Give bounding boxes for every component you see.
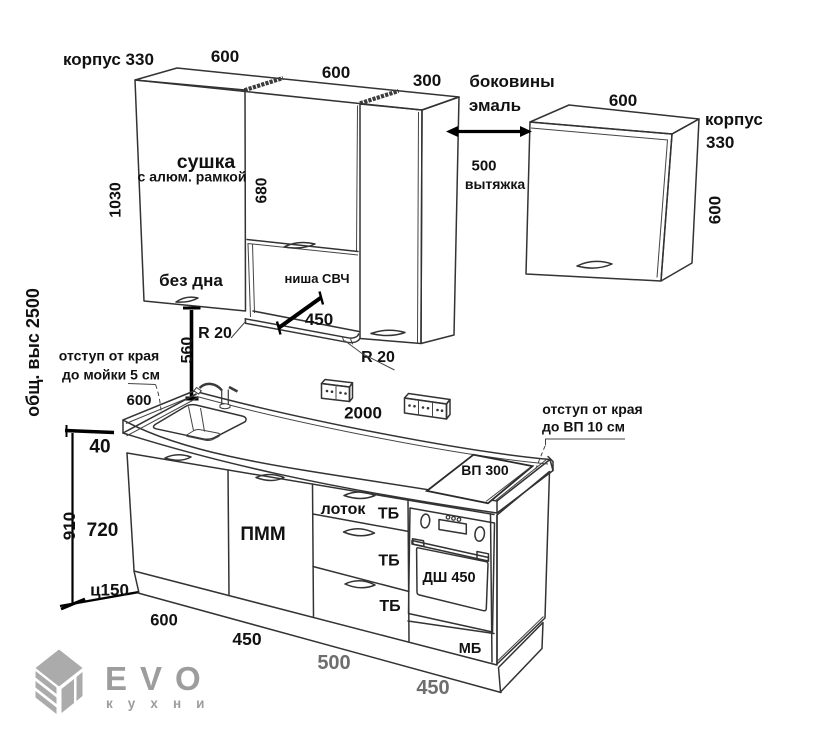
svg-text:отступ от края: отступ от края: [59, 348, 159, 364]
svg-text:корпус 330: корпус 330: [63, 50, 154, 69]
svg-text:корпус: корпус: [705, 110, 763, 129]
svg-text:ДШ 450: ДШ 450: [422, 570, 475, 586]
svg-text:до ВП 10 см: до ВП 10 см: [542, 419, 625, 435]
svg-text:лоток: лоток: [321, 501, 367, 518]
svg-text:ц150: ц150: [90, 581, 129, 600]
svg-text:600: 600: [609, 91, 637, 110]
svg-text:600: 600: [126, 392, 151, 409]
svg-text:300: 300: [413, 71, 441, 90]
svg-text:до мойки 5 см: до мойки 5 см: [62, 367, 160, 383]
svg-text:кухни: кухни: [106, 696, 219, 711]
svg-text:ВП 300: ВП 300: [461, 462, 509, 478]
svg-text:R 20: R 20: [198, 325, 232, 342]
svg-text:720: 720: [87, 520, 119, 541]
svg-text:600: 600: [211, 47, 239, 66]
svg-text:эмаль: эмаль: [469, 96, 521, 115]
svg-text:МБ: МБ: [459, 641, 482, 657]
svg-text:боковины: боковины: [469, 72, 554, 91]
svg-text:1030: 1030: [108, 182, 125, 218]
svg-text:330: 330: [706, 133, 734, 152]
svg-text:560: 560: [179, 337, 196, 364]
svg-text:с алюм. рамкой: с алюм. рамкой: [138, 169, 247, 185]
svg-text:600: 600: [322, 63, 350, 82]
svg-text:450: 450: [232, 629, 261, 649]
svg-text:ТБ: ТБ: [379, 598, 400, 615]
svg-text:ниша СВЧ: ниша СВЧ: [285, 271, 350, 286]
svg-text:без дна: без дна: [159, 271, 223, 290]
svg-text:ТБ: ТБ: [378, 506, 399, 523]
svg-text:910: 910: [60, 512, 79, 540]
svg-text:R 20: R 20: [361, 349, 395, 366]
svg-text:EVO: EVO: [105, 660, 214, 697]
svg-text:600: 600: [706, 196, 725, 224]
svg-text:500: 500: [317, 652, 350, 674]
svg-text:600: 600: [150, 612, 178, 630]
svg-text:680: 680: [254, 178, 271, 204]
svg-text:450: 450: [416, 677, 449, 699]
svg-text:ТБ: ТБ: [378, 553, 399, 570]
svg-text:500: 500: [471, 158, 496, 175]
svg-text:2000: 2000: [344, 404, 382, 423]
svg-text:отступ от края: отступ от края: [542, 401, 642, 417]
svg-text:общ. выс 2500: общ. выс 2500: [23, 288, 43, 417]
svg-text:450: 450: [305, 310, 333, 329]
svg-text:40: 40: [89, 437, 110, 458]
svg-text:вытяжка: вытяжка: [465, 176, 526, 192]
svg-text:ПММ: ПММ: [240, 524, 285, 545]
